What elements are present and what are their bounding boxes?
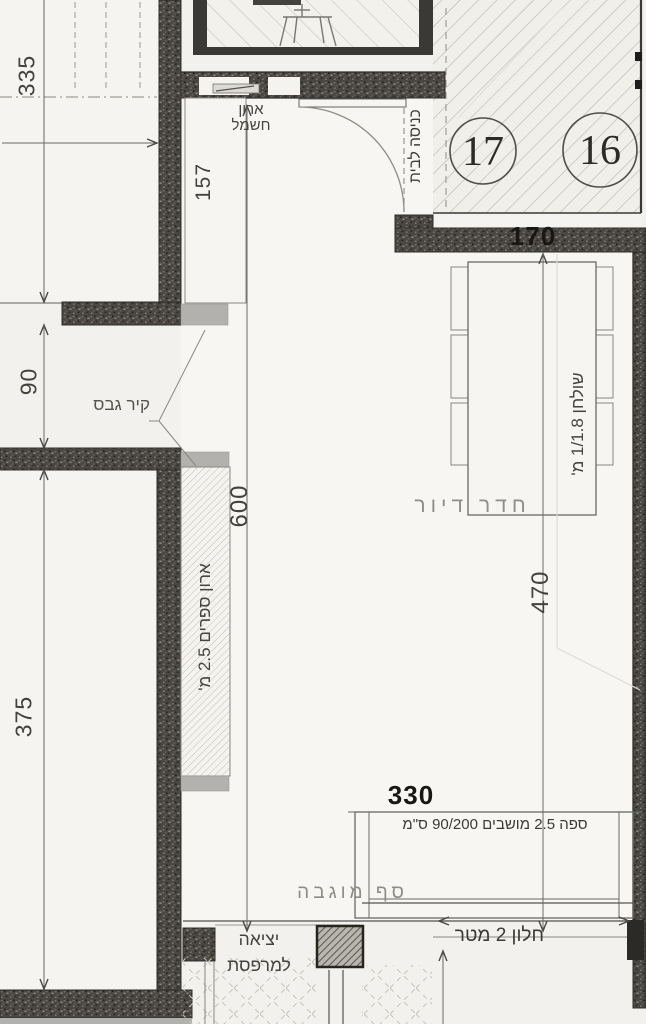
dimension-niche-157: 157 bbox=[192, 147, 216, 217]
pillar bbox=[317, 926, 363, 967]
stair-number-16: 16 bbox=[576, 128, 624, 174]
sofa-label: ספה 2.5 מושבים 90/200 ס"מ bbox=[375, 816, 615, 833]
bookcase-label: ארון ספרים 2.5 מ' bbox=[195, 472, 215, 782]
living-room-label: חדר דיור bbox=[400, 494, 545, 518]
door-leaf bbox=[299, 99, 406, 107]
dimension-room-depth-470: 470 bbox=[527, 552, 555, 632]
dimension-mid-left-90: 90 bbox=[16, 347, 43, 417]
chair bbox=[451, 403, 468, 465]
electrical-cabinet-label-line1: ארון bbox=[222, 102, 280, 118]
window-label: חלון 2 מטר bbox=[429, 925, 544, 947]
balcony-exit-label-line2: למרפסת bbox=[203, 952, 315, 978]
entrance-label: כניסה לבית bbox=[407, 76, 425, 216]
chair bbox=[451, 335, 468, 398]
electrical-cabinet-label-line2: חשמל bbox=[222, 118, 280, 134]
dimension-entry-wall-170: 170 bbox=[500, 221, 566, 252]
plan-drawing bbox=[0, 0, 646, 1024]
dimension-room-width-600: 600 bbox=[226, 466, 254, 546]
dimension-sofa-330: 330 bbox=[378, 780, 444, 811]
electrical-cabinet-label: ארון חשמל bbox=[222, 102, 280, 133]
wall-footing-gray bbox=[0, 1018, 192, 1024]
dining-table bbox=[451, 262, 613, 515]
gypsum-wall-label: קיר גבס bbox=[78, 395, 150, 415]
dimension-upper-left-335: 335 bbox=[14, 41, 41, 111]
balcony-exit-label: יציאה למרפסת bbox=[203, 926, 315, 978]
table-label: שולחן 1/1.8 מ' bbox=[568, 279, 588, 569]
raised-threshold-label: סף מוגבה bbox=[238, 882, 408, 904]
floor-plan: 335 90 375 157 600 470 170 330 ארון חשמל… bbox=[0, 0, 646, 1024]
stair-number-17: 17 bbox=[459, 129, 507, 175]
chair bbox=[596, 267, 613, 330]
window-frame-right bbox=[627, 920, 644, 960]
balcony-exit-label-line1: יציאה bbox=[203, 926, 315, 952]
chair bbox=[596, 403, 613, 465]
chair bbox=[596, 335, 613, 398]
dimension-lower-left-375: 375 bbox=[11, 682, 38, 752]
chair bbox=[451, 267, 468, 330]
